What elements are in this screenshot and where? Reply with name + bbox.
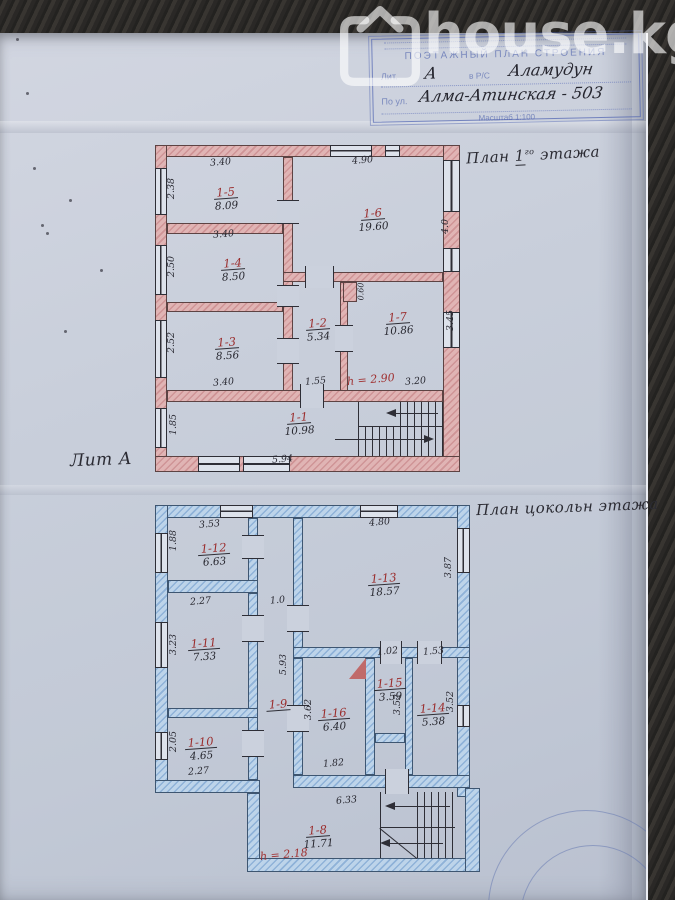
dim-label: 1.02 (377, 645, 399, 658)
floor-plan-photo: ПОЭТАЖНЫЙ ПЛАН СТРОЕНИЯ Лит. А в Р/С Ала… (0, 0, 675, 900)
room-area: 8.50 (210, 270, 257, 284)
dim-label: 3.53 (199, 518, 221, 531)
door-opening (242, 730, 264, 757)
dim-label: 3.40 (213, 376, 235, 389)
room-id: 1-6 (360, 206, 385, 221)
room-id: 1-15 (373, 676, 406, 691)
stairs-treads (400, 402, 443, 427)
door-opening (242, 535, 264, 559)
dim-label: 1.53 (423, 645, 445, 658)
dim-label: 4.0 (440, 219, 451, 234)
window (443, 160, 460, 212)
watermark-text: house.kg (424, 2, 675, 67)
dim-label: 3.52 (392, 694, 403, 715)
room-label: 1-6 19.60 (349, 202, 397, 234)
stamp-street-value: Алма-Атинская - 503 (418, 83, 604, 106)
room-id: 1-4 (220, 256, 245, 271)
room-id: 1-8 (305, 823, 330, 838)
dim-label: 3.52 (445, 691, 456, 712)
room-label: 1-10 4.65 (177, 731, 225, 763)
window (198, 456, 240, 472)
dim-label: 1.0 (270, 594, 286, 606)
room-area: 10.98 (276, 424, 323, 438)
wall (155, 145, 460, 157)
window (385, 145, 400, 157)
room-id: 1-10 (184, 735, 217, 750)
room-id: 1-2 (305, 316, 330, 331)
dim-label: 2.27 (188, 765, 210, 778)
window (443, 248, 460, 272)
door-opening (242, 615, 264, 642)
dim-label: 0.60 (356, 283, 365, 301)
stairs-direction-arrow (335, 439, 431, 440)
room-area: 4.65 (178, 749, 225, 763)
wall (375, 733, 405, 743)
window (155, 408, 167, 448)
dim-label: 2.52 (166, 332, 177, 353)
room-area: 19.60 (350, 220, 397, 234)
window (155, 533, 168, 573)
wall-niche (343, 282, 357, 302)
dim-label: 5.93 (278, 654, 289, 675)
dim-label: 2.27 (190, 595, 212, 608)
window (457, 528, 470, 573)
stamp-rs-label: в Р/С (469, 70, 490, 80)
stamp-street-label: По ул. (381, 96, 407, 107)
room-label: 1-12 6.63 (190, 537, 238, 569)
paper-speck (46, 232, 49, 235)
wall (168, 580, 258, 593)
dim-label: 6.33 (336, 794, 358, 807)
door-opening (305, 266, 334, 288)
height-note: h = 2.90 (347, 371, 396, 388)
dim-label: 1.55 (305, 375, 327, 388)
door-opening (385, 769, 409, 794)
paper-speck (33, 167, 36, 170)
wall (293, 518, 303, 658)
room-label: 1-5 8.09 (202, 181, 250, 213)
room-id: 1-13 (367, 571, 400, 586)
window (155, 622, 168, 668)
dim-label: 2.38 (166, 178, 177, 199)
paper-speck (26, 92, 29, 95)
dim-label: 3.40 (210, 156, 232, 169)
wall (155, 780, 260, 793)
stairs-direction-arrow (389, 413, 438, 414)
dim-label: 3.87 (443, 557, 454, 578)
stairs-direction-arrow (388, 806, 450, 807)
dim-label: 3.45 (445, 310, 456, 331)
room-id: 1-11 (187, 636, 220, 651)
room-area: 8.56 (204, 349, 251, 363)
liter-label: Лит А (70, 449, 133, 471)
wall (465, 788, 480, 872)
dim-label: 2.05 (168, 731, 179, 752)
room-label: 1-7 10.86 (374, 306, 422, 338)
dim-label: 5.94 (272, 453, 294, 466)
paper-speck (41, 224, 44, 227)
door-opening (277, 285, 299, 307)
dim-label: 4.80 (369, 516, 391, 529)
dim-label: 3.23 (168, 634, 179, 655)
paper-speck (64, 330, 67, 333)
room-id: 1-5 (213, 185, 238, 200)
dim-label: 3.62 (303, 699, 314, 720)
room-id: 1-1 (286, 410, 311, 425)
wall (167, 302, 283, 312)
basement-plan: 1-12 6.63 1-13 18.57 1-11 7.33 1-10 4.65… (155, 505, 480, 872)
window (220, 505, 253, 518)
dim-label: 3.20 (405, 375, 427, 388)
window (155, 732, 168, 760)
room-label: 1-15 3.59 (366, 672, 414, 704)
dim-label: 4.90 (352, 154, 374, 167)
wall (293, 775, 470, 788)
paper-speck (100, 269, 103, 272)
wall (155, 505, 470, 518)
vent-shaft-triangle (349, 658, 366, 679)
room-label: 1-2 5.34 (294, 312, 342, 344)
dim-label: 1.82 (323, 757, 345, 770)
room-area: 18.57 (361, 585, 408, 599)
dim-label: 1.85 (168, 414, 179, 435)
room-label: 1-3 8.56 (203, 331, 251, 363)
house-logo-icon (334, 0, 426, 96)
room-label: 1-11 7.33 (180, 632, 228, 664)
paper-speck (16, 38, 19, 41)
room-area: 10.86 (375, 324, 422, 338)
wall (168, 708, 258, 718)
dim-label: 3.40 (213, 228, 235, 241)
room-area: 5.38 (410, 715, 457, 729)
door-opening (277, 200, 299, 224)
door-opening (300, 384, 324, 408)
room-id: 1-12 (197, 541, 230, 556)
stairs-treads (417, 792, 455, 828)
room-label: 1-16 6.40 (310, 702, 358, 734)
room-label: 1-9 (254, 693, 301, 713)
stairs-direction-arrow (383, 843, 443, 844)
paper-speck (69, 199, 72, 202)
room-area: 7.33 (181, 650, 228, 664)
first-floor-plan: 1-5 8.09 1-4 8.50 1-3 8.56 1-6 19.60 1-2… (155, 145, 460, 472)
window (457, 705, 470, 727)
door-opening (287, 605, 309, 632)
room-id: 1-7 (385, 310, 410, 325)
room-label: 1-13 18.57 (360, 567, 408, 599)
room-id: 1-3 (214, 335, 239, 350)
stairs-edge (380, 792, 381, 858)
room-id: 1-9 (265, 697, 290, 712)
room-label: 1-1 10.98 (275, 406, 323, 438)
room-label: 1-4 8.50 (209, 252, 257, 284)
room-area: 6.40 (311, 720, 358, 734)
dim-label: 2.50 (166, 256, 177, 277)
room-area: 8.09 (203, 199, 250, 213)
dim-label: 1.88 (168, 530, 179, 551)
room-area: 6.63 (191, 555, 238, 569)
room-id: 1-16 (317, 706, 350, 721)
